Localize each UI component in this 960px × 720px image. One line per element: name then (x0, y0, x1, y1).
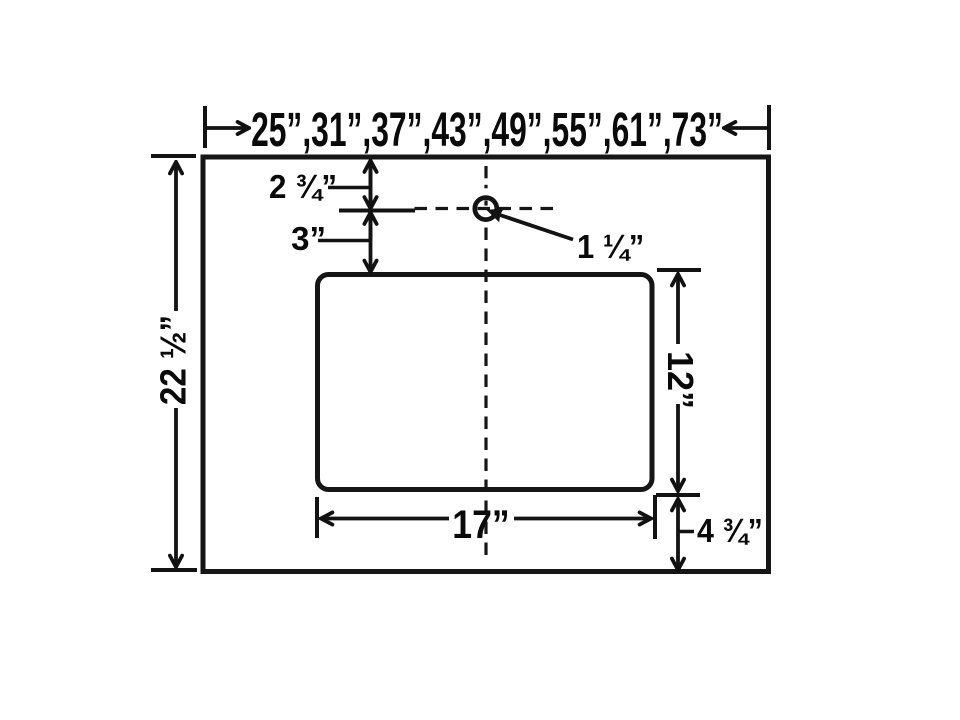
svg-text:2 ¾”: 2 ¾” (269, 168, 337, 205)
svg-text:4 ¾”: 4 ¾” (697, 512, 763, 549)
svg-text:1 ¼”: 1 ¼” (577, 228, 644, 265)
svg-text:12”: 12” (660, 351, 701, 409)
svg-text:22 ½”: 22 ½” (154, 315, 194, 405)
svg-text:25”,31”,37”,43”,49”,55”,61”,73: 25”,31”,37”,43”,49”,55”,61”,73” (251, 102, 723, 156)
svg-text:3”: 3” (291, 220, 326, 257)
svg-text:17”: 17” (452, 503, 509, 547)
